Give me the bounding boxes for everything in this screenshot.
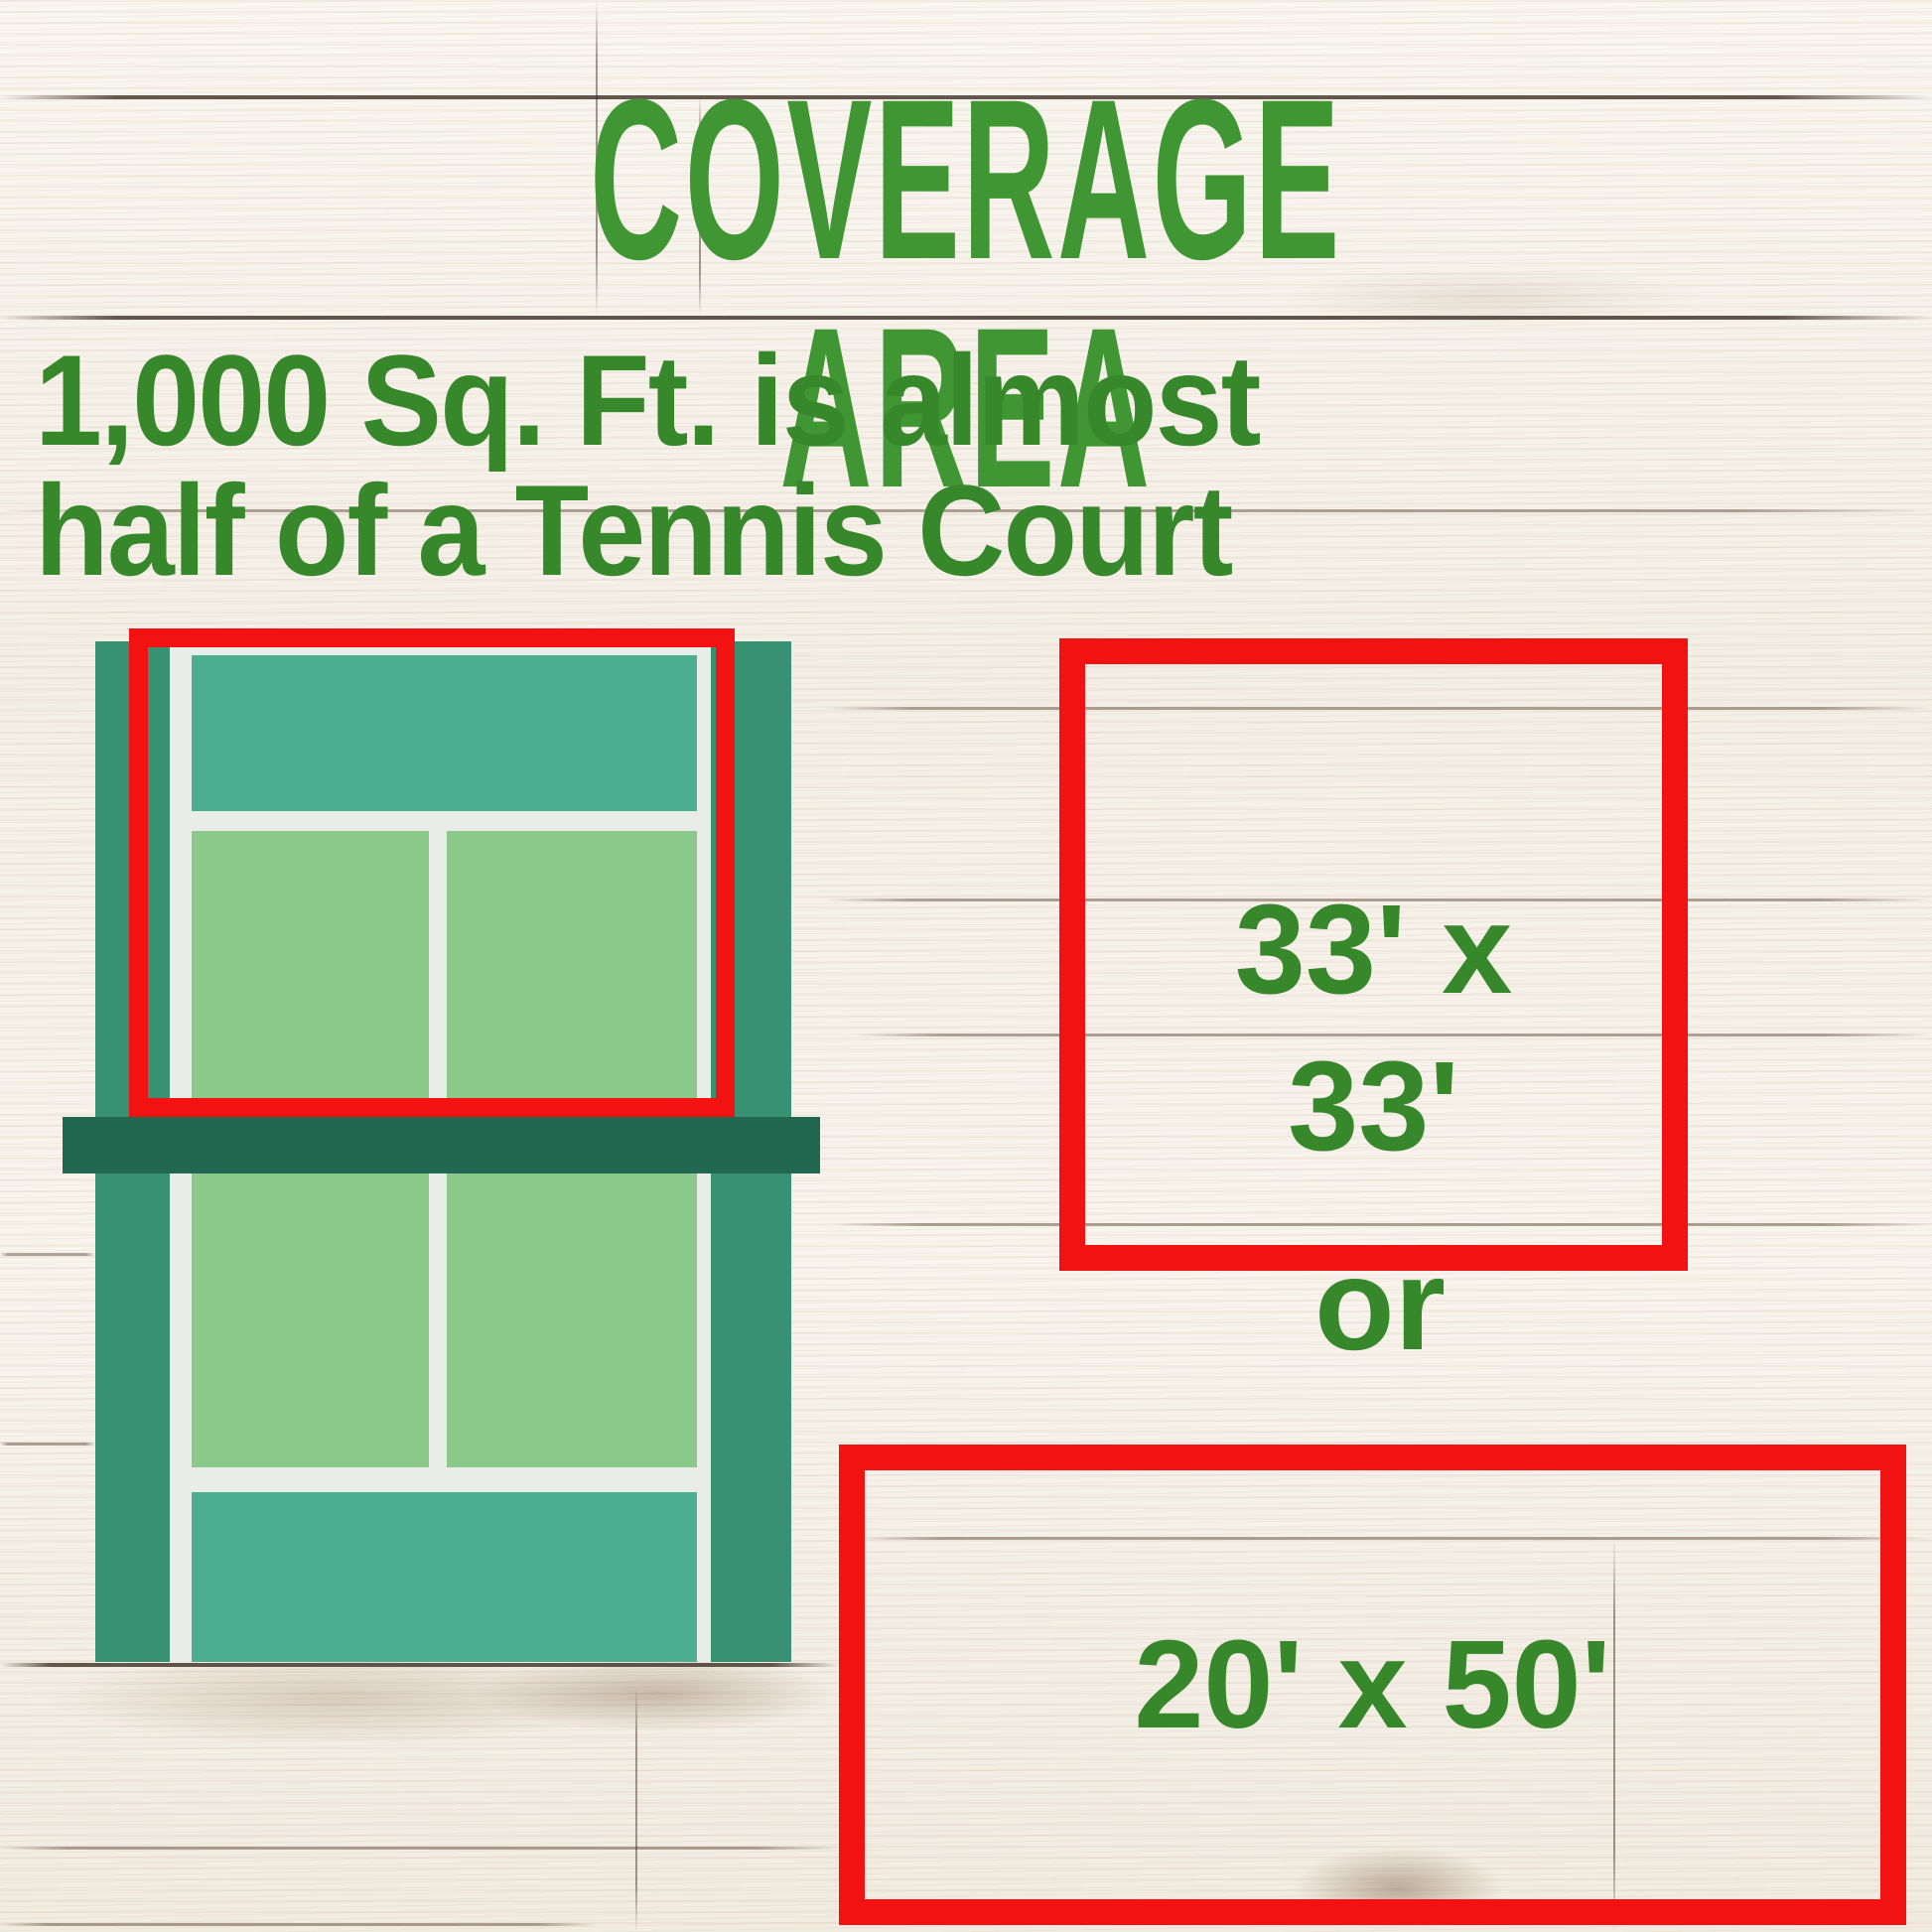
wood-plank-line xyxy=(0,1847,839,1850)
square-option-label-line-2: 33' xyxy=(1059,1029,1688,1185)
rectangle-option-outline: 20' x 50' xyxy=(839,1445,1906,1925)
net-band xyxy=(63,1117,820,1173)
subtitle-line-1: 1,000 Sq. Ft. is almost xyxy=(35,336,1260,466)
wood-plank-line xyxy=(0,1443,95,1446)
subtitle-line-2: half of a Tennis Court xyxy=(35,466,1260,596)
wood-plank-line xyxy=(0,1923,596,1926)
or-label: or xyxy=(1261,1239,1499,1370)
coverage-area-infographic: COVERAGE AREA 1,000 Sq. Ft. is almost ha… xyxy=(0,0,1932,1932)
square-option-label-line-1: 33' x xyxy=(1059,872,1688,1029)
rectangle-option-label: 20' x 50' xyxy=(1134,1622,1610,1747)
service-box-lower-right xyxy=(447,1173,697,1467)
court-backcourt-bottom xyxy=(192,1492,697,1662)
subtitle: 1,000 Sq. Ft. is almost half of a Tennis… xyxy=(35,336,1260,596)
square-option-label: 33' x 33' xyxy=(1059,872,1688,1185)
court-half-highlight-outline xyxy=(129,628,735,1117)
wood-crack-line xyxy=(635,1688,637,1932)
wood-plank-line xyxy=(0,1253,95,1256)
service-box-lower-left xyxy=(192,1173,429,1467)
wood-plank-line xyxy=(0,1663,839,1667)
